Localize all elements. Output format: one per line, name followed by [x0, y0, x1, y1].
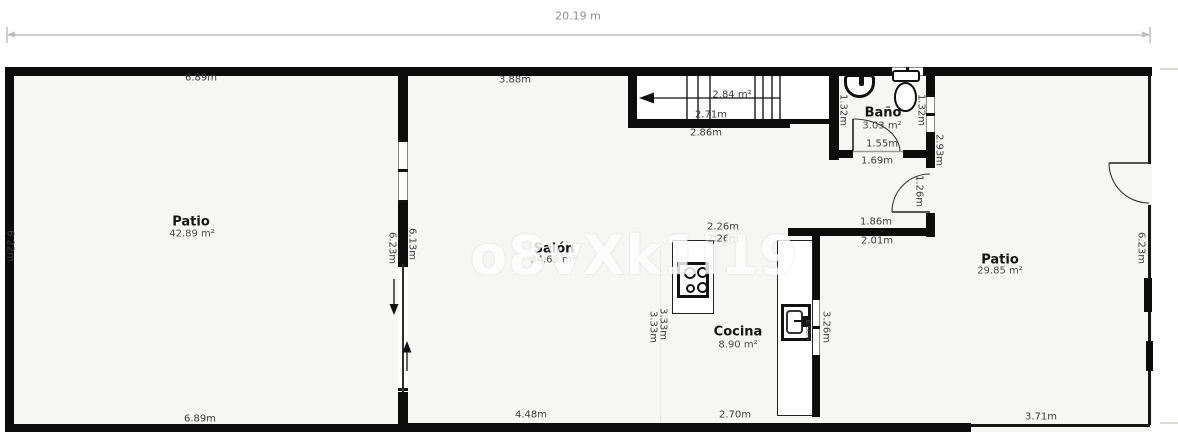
dim-counter-depth: 0.60m [804, 320, 812, 341]
room-area-bano: 3.03 m² [862, 121, 901, 132]
room-area-cocina: 8.90 m² [718, 340, 757, 351]
floor-plan: 20.19 m [0, 0, 1178, 440]
room-area-patio-left: 42.89 m² [169, 229, 215, 240]
room-label-bano: Baño [865, 106, 902, 121]
dim-cocina-bottom: 2.70m [719, 410, 751, 421]
dim-kitchen-wall-right: 3.26m [821, 311, 832, 343]
dim-bano-inner-width: 1.55m [866, 139, 898, 150]
dim-bano-right-height: 1.32m [916, 94, 927, 126]
watermark: o8vXk1i19 [470, 224, 798, 287]
top-dimension-arrowheads [7, 32, 1150, 38]
dim-patio-left-top: 6.89m [185, 73, 217, 84]
dim-salon-bottom: 4.48m [515, 410, 547, 421]
dim-patio-right-bottom: 3.71m [1025, 412, 1057, 423]
room-area-patio-right: 29.85 m² [977, 266, 1023, 277]
dim-stairs-width: 2.71m [695, 110, 727, 121]
dim-kitchen-left-b: 3.33m [658, 308, 669, 340]
dim-stairs-area: 2.84 m² [712, 90, 751, 101]
entry-arrow-down [390, 279, 399, 315]
dim-midwall-salon-side: 6.13m [407, 228, 418, 260]
dim-hall-width-bottom: 2.01m [861, 236, 893, 247]
top-dimension-label: 20.19 m [555, 10, 601, 23]
dim-stairs-below: 2.86m [690, 128, 722, 139]
dim-patio-left-bottom: 6.89m [184, 414, 216, 425]
room-label-cocina: Cocina [714, 325, 763, 340]
dim-patio-left-side: 6.22m [5, 230, 16, 262]
room-label-patio-left: Patio [172, 215, 210, 230]
entry-arrow-up [403, 341, 412, 371]
patio-right-door [1109, 163, 1149, 203]
dim-bano-outer-width: 1.69m [861, 156, 893, 167]
dim-salon-top: 3.88m [499, 75, 531, 86]
dim-midwall-patio-side: 6.23m [387, 232, 398, 264]
dim-hall-door: 1.26m [914, 175, 925, 207]
dim-hall-width-top: 1.86m [860, 217, 892, 228]
dim-bano-wall-height: 2.93m [934, 134, 945, 166]
dim-patio-right-side: 6.23m [1136, 232, 1147, 264]
dim-bano-left-height: 1.32m [838, 94, 849, 126]
